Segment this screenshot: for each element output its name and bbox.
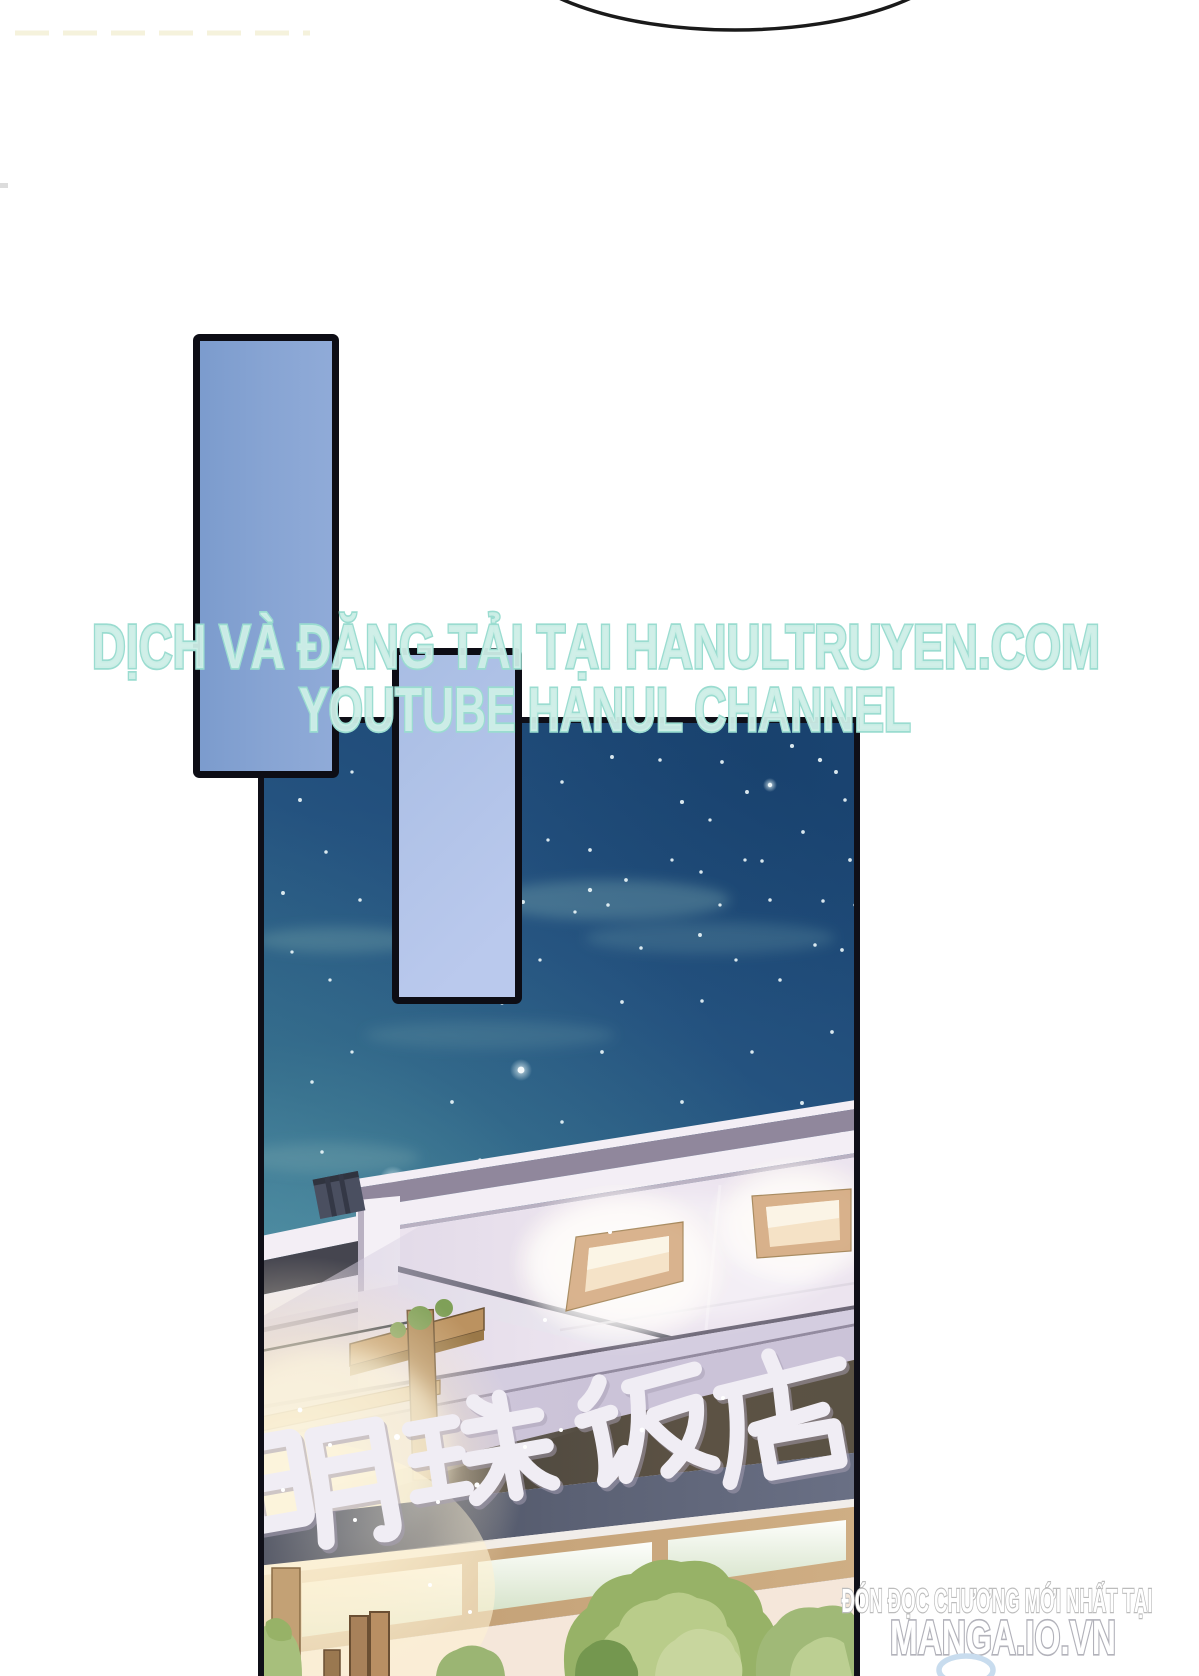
svg-text:YOUTUBE HANUL CHANNEL: YOUTUBE HANUL CHANNEL	[299, 676, 911, 745]
svg-text:DỊCH VÀ ĐĂNG TẢI TẠI HANULTRUY: DỊCH VÀ ĐĂNG TẢI TẠI HANULTRUYEN.COM	[92, 613, 1100, 682]
svg-text:MANGA.IO.VN: MANGA.IO.VN	[890, 1612, 1116, 1665]
